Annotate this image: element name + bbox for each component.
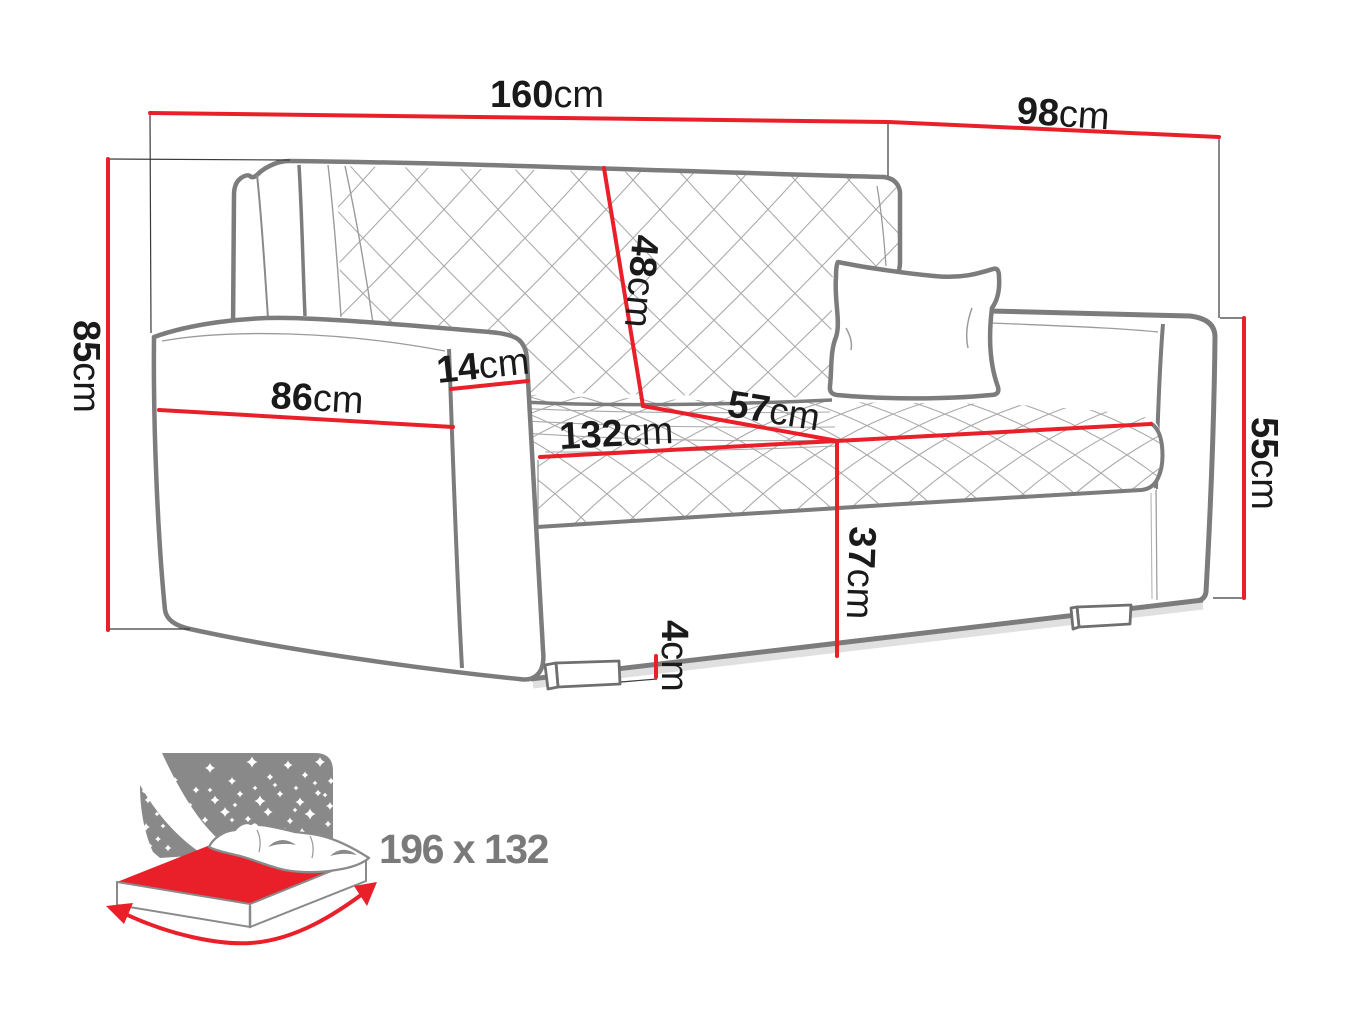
- svg-text:132cm: 132cm: [558, 410, 674, 458]
- svg-text:98cm: 98cm: [1015, 90, 1111, 138]
- svg-text:37cm: 37cm: [838, 526, 883, 620]
- svg-text:160cm: 160cm: [490, 74, 604, 116]
- svg-text:86cm: 86cm: [269, 375, 364, 422]
- svg-text:196 x 132: 196 x 132: [379, 826, 549, 872]
- svg-text:4cm: 4cm: [653, 620, 695, 692]
- svg-text:55cm: 55cm: [1243, 417, 1285, 510]
- svg-text:48cm: 48cm: [616, 233, 666, 329]
- svg-text:85cm: 85cm: [65, 320, 107, 413]
